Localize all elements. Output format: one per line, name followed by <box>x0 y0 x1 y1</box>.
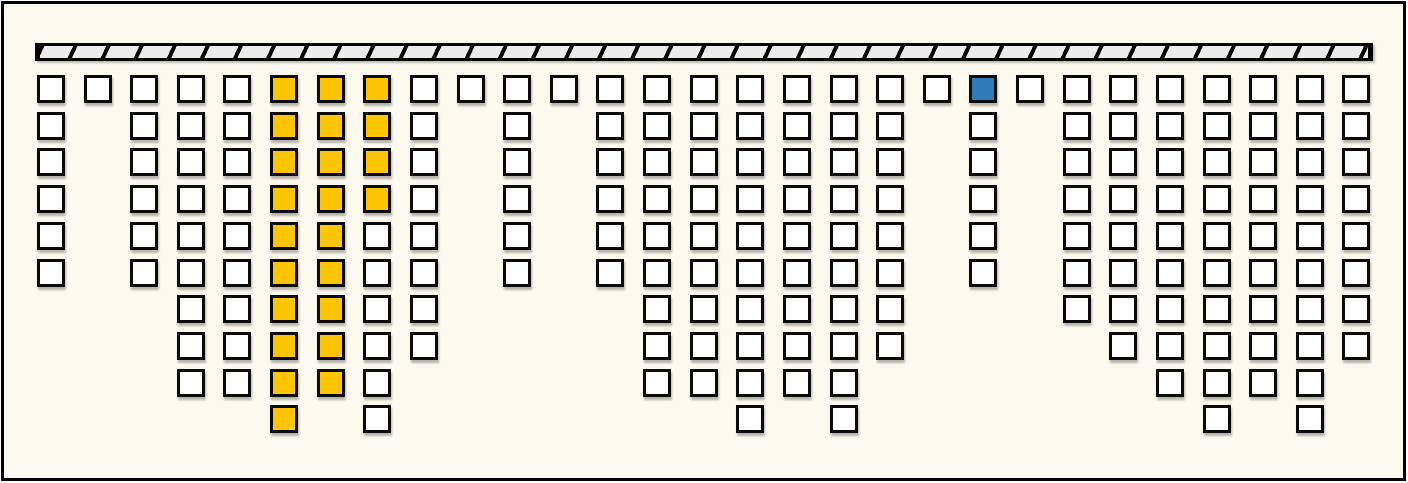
grid-cell[interactable] <box>1296 259 1324 287</box>
grid-cell[interactable] <box>177 185 205 213</box>
grid-cell[interactable] <box>830 112 858 140</box>
grid-cell[interactable] <box>130 222 158 250</box>
grid-cell[interactable] <box>1249 185 1277 213</box>
grid-cell[interactable] <box>503 222 531 250</box>
grid-cell[interactable] <box>223 112 251 140</box>
grid-cell[interactable] <box>1109 148 1137 176</box>
grid-cell[interactable] <box>270 332 298 360</box>
grid-cell[interactable] <box>736 259 764 287</box>
grid-cell[interactable] <box>1156 148 1184 176</box>
grid-cell[interactable] <box>1156 185 1184 213</box>
grid-cell[interactable] <box>783 185 811 213</box>
grid-cell[interactable] <box>317 75 345 103</box>
grid-cell[interactable] <box>690 295 718 323</box>
grid-cell[interactable] <box>317 369 345 397</box>
grid-cell[interactable] <box>876 185 904 213</box>
grid-cell[interactable] <box>1203 259 1231 287</box>
grid-cell[interactable] <box>270 405 298 433</box>
grid-cell[interactable] <box>1016 75 1044 103</box>
grid-cell[interactable] <box>130 112 158 140</box>
grid-cell[interactable] <box>130 259 158 287</box>
grid-cell[interactable] <box>223 369 251 397</box>
grid-cell[interactable] <box>596 112 624 140</box>
grid-cell[interactable] <box>177 75 205 103</box>
grid-cell[interactable] <box>1063 295 1091 323</box>
grid-cell[interactable] <box>363 295 391 323</box>
grid-cell[interactable] <box>736 222 764 250</box>
grid-cell[interactable] <box>783 259 811 287</box>
grid-cell[interactable] <box>830 369 858 397</box>
square-grid <box>4 4 1403 478</box>
grid-cell[interactable] <box>643 222 671 250</box>
grid-cell[interactable] <box>830 222 858 250</box>
grid-cell[interactable] <box>596 259 624 287</box>
grid-cell[interactable] <box>1203 369 1231 397</box>
grid-cell[interactable] <box>1156 369 1184 397</box>
grid-cell[interactable] <box>270 148 298 176</box>
grid-cell[interactable] <box>410 112 438 140</box>
grid-cell[interactable] <box>1296 222 1324 250</box>
grid-cell[interactable] <box>37 222 65 250</box>
grid-cell[interactable] <box>876 148 904 176</box>
grid-cell[interactable] <box>783 332 811 360</box>
grid-cell[interactable] <box>596 75 624 103</box>
grid-cell[interactable] <box>317 112 345 140</box>
grid-cell[interactable] <box>1203 185 1231 213</box>
grid-cell[interactable] <box>969 222 997 250</box>
grid-cell[interactable] <box>1203 112 1231 140</box>
grid-cell[interactable] <box>1342 259 1370 287</box>
grid-cell[interactable] <box>1249 259 1277 287</box>
grid-cell[interactable] <box>363 222 391 250</box>
grid-cell[interactable] <box>1156 112 1184 140</box>
grid-cell[interactable] <box>643 295 671 323</box>
grid-cell[interactable] <box>410 295 438 323</box>
grid-cell[interactable] <box>1063 185 1091 213</box>
grid-cell[interactable] <box>1249 148 1277 176</box>
grid-cell[interactable] <box>736 75 764 103</box>
grid-cell[interactable] <box>177 148 205 176</box>
grid-cell[interactable] <box>969 185 997 213</box>
grid-cell[interactable] <box>1109 75 1137 103</box>
grid-cell[interactable] <box>830 405 858 433</box>
grid-cell[interactable] <box>363 259 391 287</box>
grid-cell[interactable] <box>1342 332 1370 360</box>
grid-cell[interactable] <box>1342 75 1370 103</box>
grid-cell[interactable] <box>1342 148 1370 176</box>
grid-cell[interactable] <box>410 259 438 287</box>
grid-cell[interactable] <box>177 332 205 360</box>
grid-cell[interactable] <box>876 75 904 103</box>
grid-cell[interactable] <box>177 112 205 140</box>
grid-cell[interactable] <box>783 369 811 397</box>
grid-cell[interactable] <box>690 75 718 103</box>
grid-cell[interactable] <box>270 75 298 103</box>
grid-cell[interactable] <box>130 75 158 103</box>
grid-cell[interactable] <box>1109 295 1137 323</box>
grid-cell[interactable] <box>1296 75 1324 103</box>
grid-cell[interactable] <box>1249 332 1277 360</box>
grid-cell[interactable] <box>1063 222 1091 250</box>
grid-cell[interactable] <box>1296 405 1324 433</box>
grid-cell[interactable] <box>643 75 671 103</box>
grid-cell[interactable] <box>503 75 531 103</box>
grid-cell[interactable] <box>1342 295 1370 323</box>
grid-cell[interactable] <box>223 185 251 213</box>
grid-cell[interactable] <box>1156 259 1184 287</box>
grid-cell[interactable] <box>223 148 251 176</box>
grid-cell[interactable] <box>969 259 997 287</box>
grid-cell[interactable] <box>876 259 904 287</box>
grid-cell[interactable] <box>550 75 578 103</box>
grid-cell[interactable] <box>363 332 391 360</box>
grid-cell[interactable] <box>783 75 811 103</box>
grid-cell[interactable] <box>223 222 251 250</box>
grid-cell[interactable] <box>223 295 251 323</box>
grid-cell[interactable] <box>969 148 997 176</box>
grid-cell[interactable] <box>1109 222 1137 250</box>
grid-cell[interactable] <box>317 185 345 213</box>
grid-cell[interactable] <box>736 185 764 213</box>
grid-cell[interactable] <box>643 185 671 213</box>
grid-cell[interactable] <box>1249 112 1277 140</box>
grid-cell[interactable] <box>643 369 671 397</box>
grid-cell[interactable] <box>177 222 205 250</box>
grid-cell[interactable] <box>643 112 671 140</box>
grid-cell[interactable] <box>830 75 858 103</box>
grid-cell[interactable] <box>37 112 65 140</box>
grid-cell[interactable] <box>177 259 205 287</box>
grid-cell[interactable] <box>736 405 764 433</box>
grid-cell[interactable] <box>317 148 345 176</box>
grid-cell[interactable] <box>1296 112 1324 140</box>
grid-cell[interactable] <box>37 75 65 103</box>
grid-cell[interactable] <box>1249 295 1277 323</box>
grid-cell[interactable] <box>1063 259 1091 287</box>
grid-cell[interactable] <box>1063 75 1091 103</box>
grid-cell[interactable] <box>783 222 811 250</box>
grid-cell[interactable] <box>1249 75 1277 103</box>
grid-cell[interactable] <box>270 112 298 140</box>
grid-cell[interactable] <box>270 295 298 323</box>
grid-cell[interactable] <box>223 332 251 360</box>
grid-cell[interactable] <box>1156 222 1184 250</box>
grid-cell[interactable] <box>1109 185 1137 213</box>
grid-cell[interactable] <box>1203 295 1231 323</box>
grid-cell[interactable] <box>690 148 718 176</box>
grid-cell[interactable] <box>37 259 65 287</box>
grid-cell[interactable] <box>410 75 438 103</box>
grid-cell[interactable] <box>1156 332 1184 360</box>
grid-cell[interactable] <box>363 75 391 103</box>
grid-cell[interactable] <box>130 148 158 176</box>
grid-cell[interactable] <box>830 148 858 176</box>
grid-cell[interactable] <box>876 222 904 250</box>
grid-cell[interactable] <box>830 295 858 323</box>
grid-cell[interactable] <box>783 148 811 176</box>
grid-cell[interactable] <box>783 112 811 140</box>
grid-cell[interactable] <box>1156 295 1184 323</box>
grid-cell[interactable] <box>317 295 345 323</box>
canvas-frame <box>1 1 1406 481</box>
grid-cell[interactable] <box>736 148 764 176</box>
grid-cell[interactable] <box>596 185 624 213</box>
grid-cell[interactable] <box>690 369 718 397</box>
grid-cell[interactable] <box>177 295 205 323</box>
grid-cell[interactable] <box>37 148 65 176</box>
grid-cell[interactable] <box>223 259 251 287</box>
grid-cell[interactable] <box>596 148 624 176</box>
grid-cell[interactable] <box>830 185 858 213</box>
grid-cell[interactable] <box>969 75 997 103</box>
grid-cell[interactable] <box>1342 222 1370 250</box>
grid-cell[interactable] <box>363 405 391 433</box>
grid-cell[interactable] <box>84 75 112 103</box>
grid-cell[interactable] <box>783 295 811 323</box>
grid-cell[interactable] <box>830 259 858 287</box>
grid-cell[interactable] <box>1296 185 1324 213</box>
grid-cell[interactable] <box>876 295 904 323</box>
grid-cell[interactable] <box>830 332 858 360</box>
grid-cell[interactable] <box>37 185 65 213</box>
grid-cell[interactable] <box>270 222 298 250</box>
grid-cell[interactable] <box>1249 222 1277 250</box>
grid-cell[interactable] <box>643 259 671 287</box>
grid-cell[interactable] <box>1203 75 1231 103</box>
grid-cell[interactable] <box>736 112 764 140</box>
grid-cell[interactable] <box>1249 369 1277 397</box>
grid-cell[interactable] <box>1063 112 1091 140</box>
grid-cell[interactable] <box>317 259 345 287</box>
grid-cell[interactable] <box>1203 405 1231 433</box>
grid-cell[interactable] <box>270 259 298 287</box>
grid-cell[interactable] <box>643 332 671 360</box>
grid-cell[interactable] <box>736 332 764 360</box>
grid-cell[interactable] <box>1342 185 1370 213</box>
grid-cell[interactable] <box>1109 332 1137 360</box>
grid-cell[interactable] <box>410 185 438 213</box>
grid-cell[interactable] <box>1203 148 1231 176</box>
grid-cell[interactable] <box>876 332 904 360</box>
grid-cell[interactable] <box>643 148 671 176</box>
grid-cell[interactable] <box>317 332 345 360</box>
grid-cell[interactable] <box>969 112 997 140</box>
grid-cell[interactable] <box>363 185 391 213</box>
grid-cell[interactable] <box>690 332 718 360</box>
grid-cell[interactable] <box>1296 332 1324 360</box>
grid-cell[interactable] <box>363 112 391 140</box>
grid-cell[interactable] <box>503 185 531 213</box>
grid-cell[interactable] <box>1109 112 1137 140</box>
grid-cell[interactable] <box>1342 112 1370 140</box>
grid-cell[interactable] <box>410 332 438 360</box>
grid-cell[interactable] <box>1203 332 1231 360</box>
grid-cell[interactable] <box>690 222 718 250</box>
grid-cell[interactable] <box>503 112 531 140</box>
grid-cell[interactable] <box>363 148 391 176</box>
grid-cell[interactable] <box>923 75 951 103</box>
grid-cell[interactable] <box>690 185 718 213</box>
grid-cell[interactable] <box>363 369 391 397</box>
grid-cell[interactable] <box>503 148 531 176</box>
grid-cell[interactable] <box>1063 148 1091 176</box>
grid-cell[interactable] <box>596 222 624 250</box>
grid-cell[interactable] <box>177 369 205 397</box>
grid-cell[interactable] <box>130 185 158 213</box>
grid-cell[interactable] <box>690 112 718 140</box>
grid-cell[interactable] <box>1296 295 1324 323</box>
grid-cell[interactable] <box>410 148 438 176</box>
grid-cell[interactable] <box>223 75 251 103</box>
grid-cell[interactable] <box>457 75 485 103</box>
grid-cell[interactable] <box>503 259 531 287</box>
grid-cell[interactable] <box>410 222 438 250</box>
grid-cell[interactable] <box>736 295 764 323</box>
grid-cell[interactable] <box>1156 75 1184 103</box>
grid-cell[interactable] <box>690 259 718 287</box>
grid-cell[interactable] <box>876 112 904 140</box>
grid-cell[interactable] <box>1109 259 1137 287</box>
grid-cell[interactable] <box>1296 148 1324 176</box>
grid-cell[interactable] <box>270 185 298 213</box>
grid-cell[interactable] <box>1203 222 1231 250</box>
grid-cell[interactable] <box>270 369 298 397</box>
grid-cell[interactable] <box>1296 369 1324 397</box>
grid-cell[interactable] <box>736 369 764 397</box>
grid-cell[interactable] <box>317 222 345 250</box>
